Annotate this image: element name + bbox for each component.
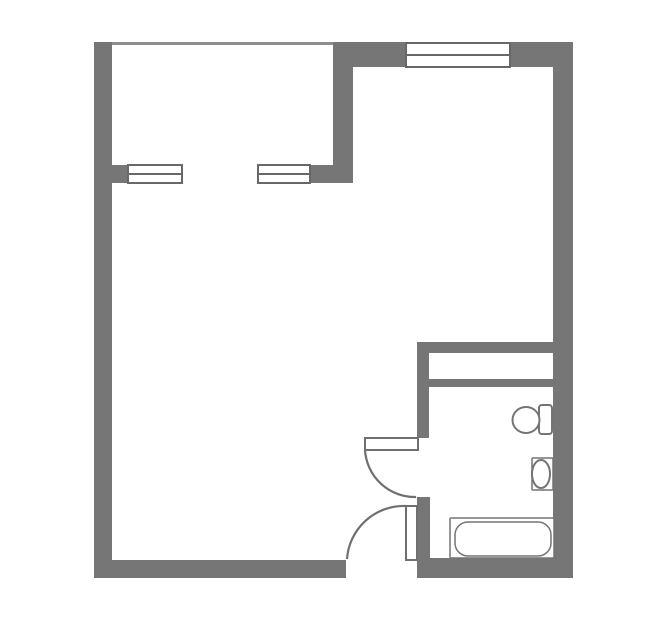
toilet-tank-icon	[539, 405, 552, 434]
bathroom-shaft-wall	[429, 379, 553, 387]
top-wall-right-of-window	[510, 42, 573, 67]
bathroom-left-wall-upper	[417, 342, 429, 438]
bathroom-door-swing-arc	[365, 450, 416, 497]
bathroom-door-leaf	[365, 438, 418, 450]
bottom-wall	[94, 560, 346, 578]
floor-plan-drawing	[0, 0, 664, 629]
bathroom-bottom-wall	[417, 558, 573, 578]
toilet-bowl-icon	[513, 407, 540, 433]
bathtub-basin-icon	[455, 522, 551, 556]
floor-plan	[0, 0, 664, 629]
balcony-divider-wall	[333, 42, 353, 183]
entry-door-leaf	[406, 506, 417, 560]
entry-door-swing-arc	[347, 506, 406, 559]
left-wall	[94, 42, 112, 578]
right-wall	[553, 42, 573, 578]
balcony-sill-stub-right	[310, 165, 353, 183]
sink-basin-icon	[532, 460, 550, 488]
balcony-open-edge	[112, 42, 333, 45]
bathroom-top-wall	[417, 342, 565, 353]
balcony-sill-stub-left	[112, 165, 128, 183]
